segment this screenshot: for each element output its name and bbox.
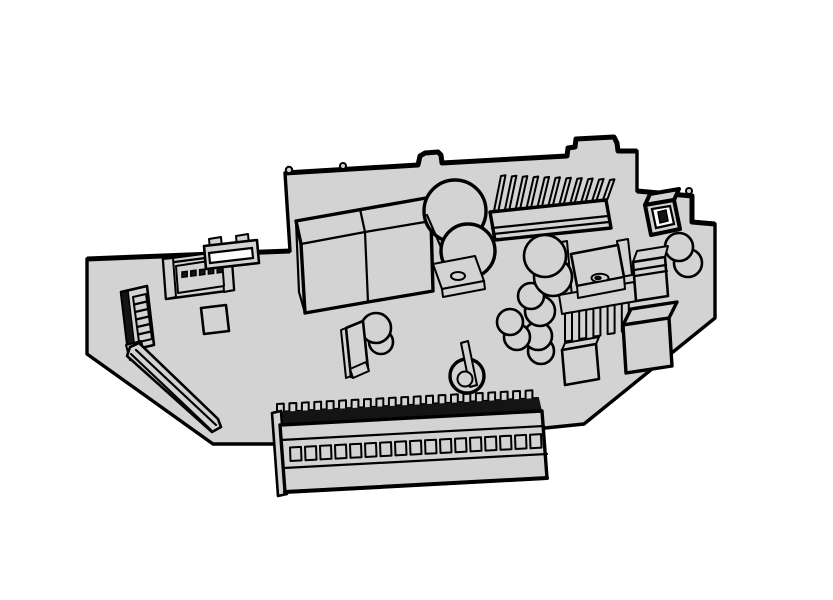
header-pin <box>191 270 196 276</box>
comb-tooth <box>565 312 572 341</box>
terminal-hole <box>530 434 542 448</box>
bracket-hole <box>451 272 465 280</box>
header-pin <box>182 271 187 277</box>
terminal-hole <box>515 435 527 449</box>
film-capacitor <box>633 246 668 301</box>
terminal-hole <box>365 443 377 457</box>
loop-inner <box>458 372 473 387</box>
terminal-hole <box>410 441 422 455</box>
terminal-hole <box>500 436 512 450</box>
edge-nub <box>340 163 346 169</box>
terminal-hole <box>335 445 347 459</box>
cube-front <box>623 318 672 373</box>
terminal-hole <box>440 439 452 453</box>
cube-component <box>623 302 677 373</box>
capacitor-rim <box>497 309 523 335</box>
terminal-hole <box>455 438 467 452</box>
terminal-hole <box>485 437 497 451</box>
terminal-hole <box>290 447 302 461</box>
comb-tooth <box>593 307 600 336</box>
edge-nub <box>286 167 292 173</box>
terminal-hole <box>350 444 362 458</box>
terminal-hole <box>470 437 482 451</box>
terminal-hole <box>395 441 407 455</box>
terminal-hole <box>305 446 317 460</box>
flat-pad-front <box>562 344 599 385</box>
square-pad <box>201 305 229 334</box>
edge-nub <box>686 188 692 194</box>
header-wall-left <box>163 258 176 299</box>
header-pin <box>200 269 205 275</box>
terminal-hole <box>320 445 332 459</box>
to220-screw-dot <box>595 276 601 279</box>
pcb-illustration <box>0 0 833 600</box>
jst-pin <box>658 210 668 223</box>
comb-tooth <box>608 305 615 334</box>
film-cap-front <box>633 257 668 301</box>
terminal-hole <box>425 440 437 454</box>
terminal-hole <box>380 442 392 456</box>
jst-connector <box>645 189 680 235</box>
capacitor-rim <box>665 233 693 261</box>
flat-pad <box>562 337 599 385</box>
comb-tooth <box>579 310 586 339</box>
capacitor-rim <box>524 235 566 277</box>
